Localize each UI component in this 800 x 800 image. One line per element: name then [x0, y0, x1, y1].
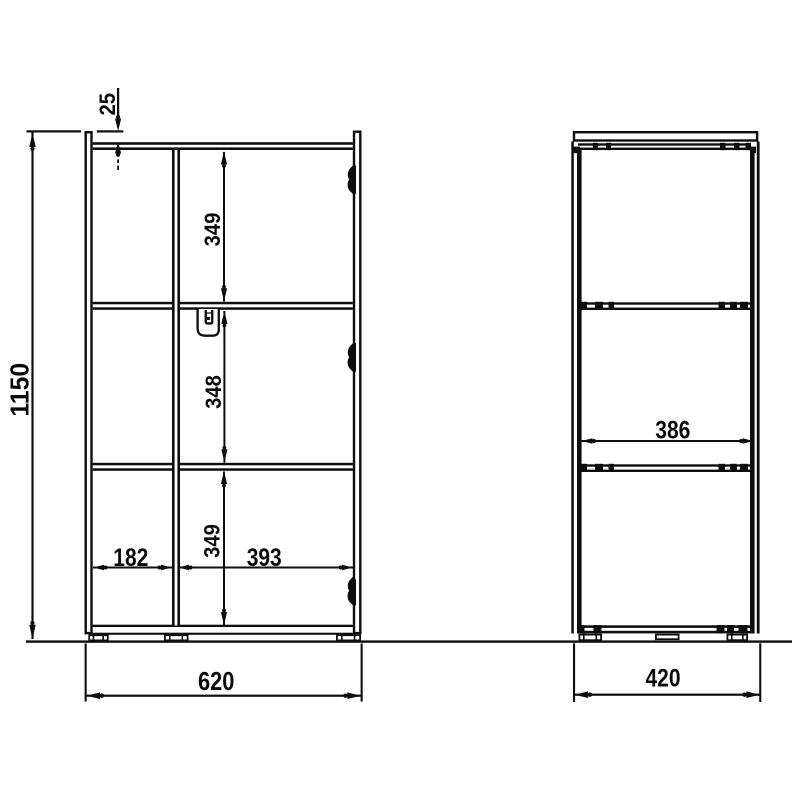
- svg-text:349: 349: [201, 213, 225, 247]
- svg-text:386: 386: [655, 416, 690, 444]
- svg-text:348: 348: [202, 375, 226, 409]
- svg-text:349: 349: [201, 524, 225, 558]
- svg-text:182: 182: [113, 543, 148, 571]
- svg-text:25: 25: [96, 93, 120, 116]
- svg-text:1150: 1150: [6, 363, 35, 417]
- svg-text:393: 393: [247, 543, 282, 571]
- svg-text:420: 420: [645, 664, 680, 692]
- svg-text:620: 620: [198, 667, 234, 696]
